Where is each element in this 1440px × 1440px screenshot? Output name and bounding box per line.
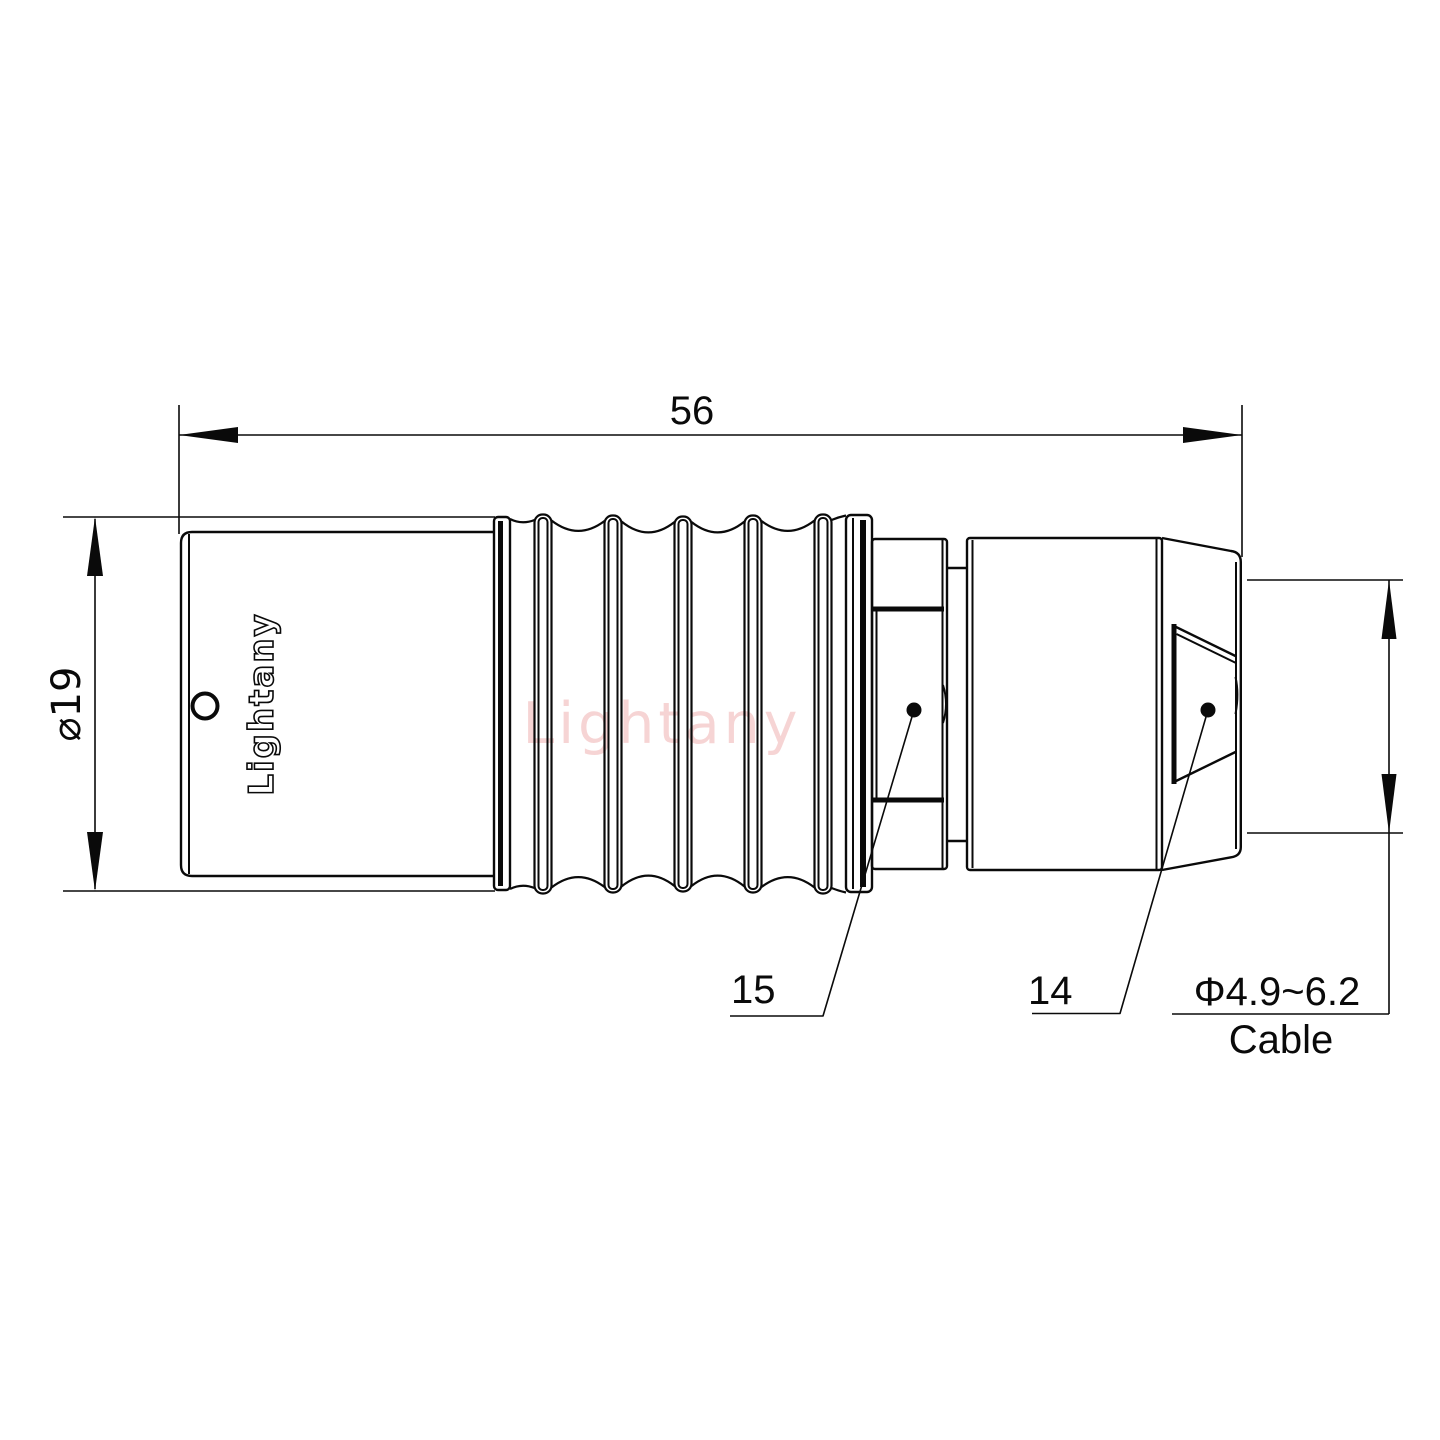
cable-word-label: Cable bbox=[1229, 1018, 1334, 1062]
part-14-label: 14 bbox=[1028, 969, 1073, 1013]
connector-technical-drawing: Lightany Lightany bbox=[0, 0, 1440, 1440]
leader-dot bbox=[907, 703, 922, 718]
engraving-text: Lightany bbox=[242, 612, 282, 795]
watermark-text: Lightany bbox=[522, 691, 801, 757]
leader-dot bbox=[1201, 703, 1216, 718]
part-15-label: 15 bbox=[731, 968, 776, 1012]
cable-diameter-label: Φ4.9~6.2 bbox=[1194, 970, 1360, 1014]
outer-diameter-label: ⌀19 bbox=[44, 667, 90, 742]
overall-length-label: 56 bbox=[670, 389, 715, 433]
